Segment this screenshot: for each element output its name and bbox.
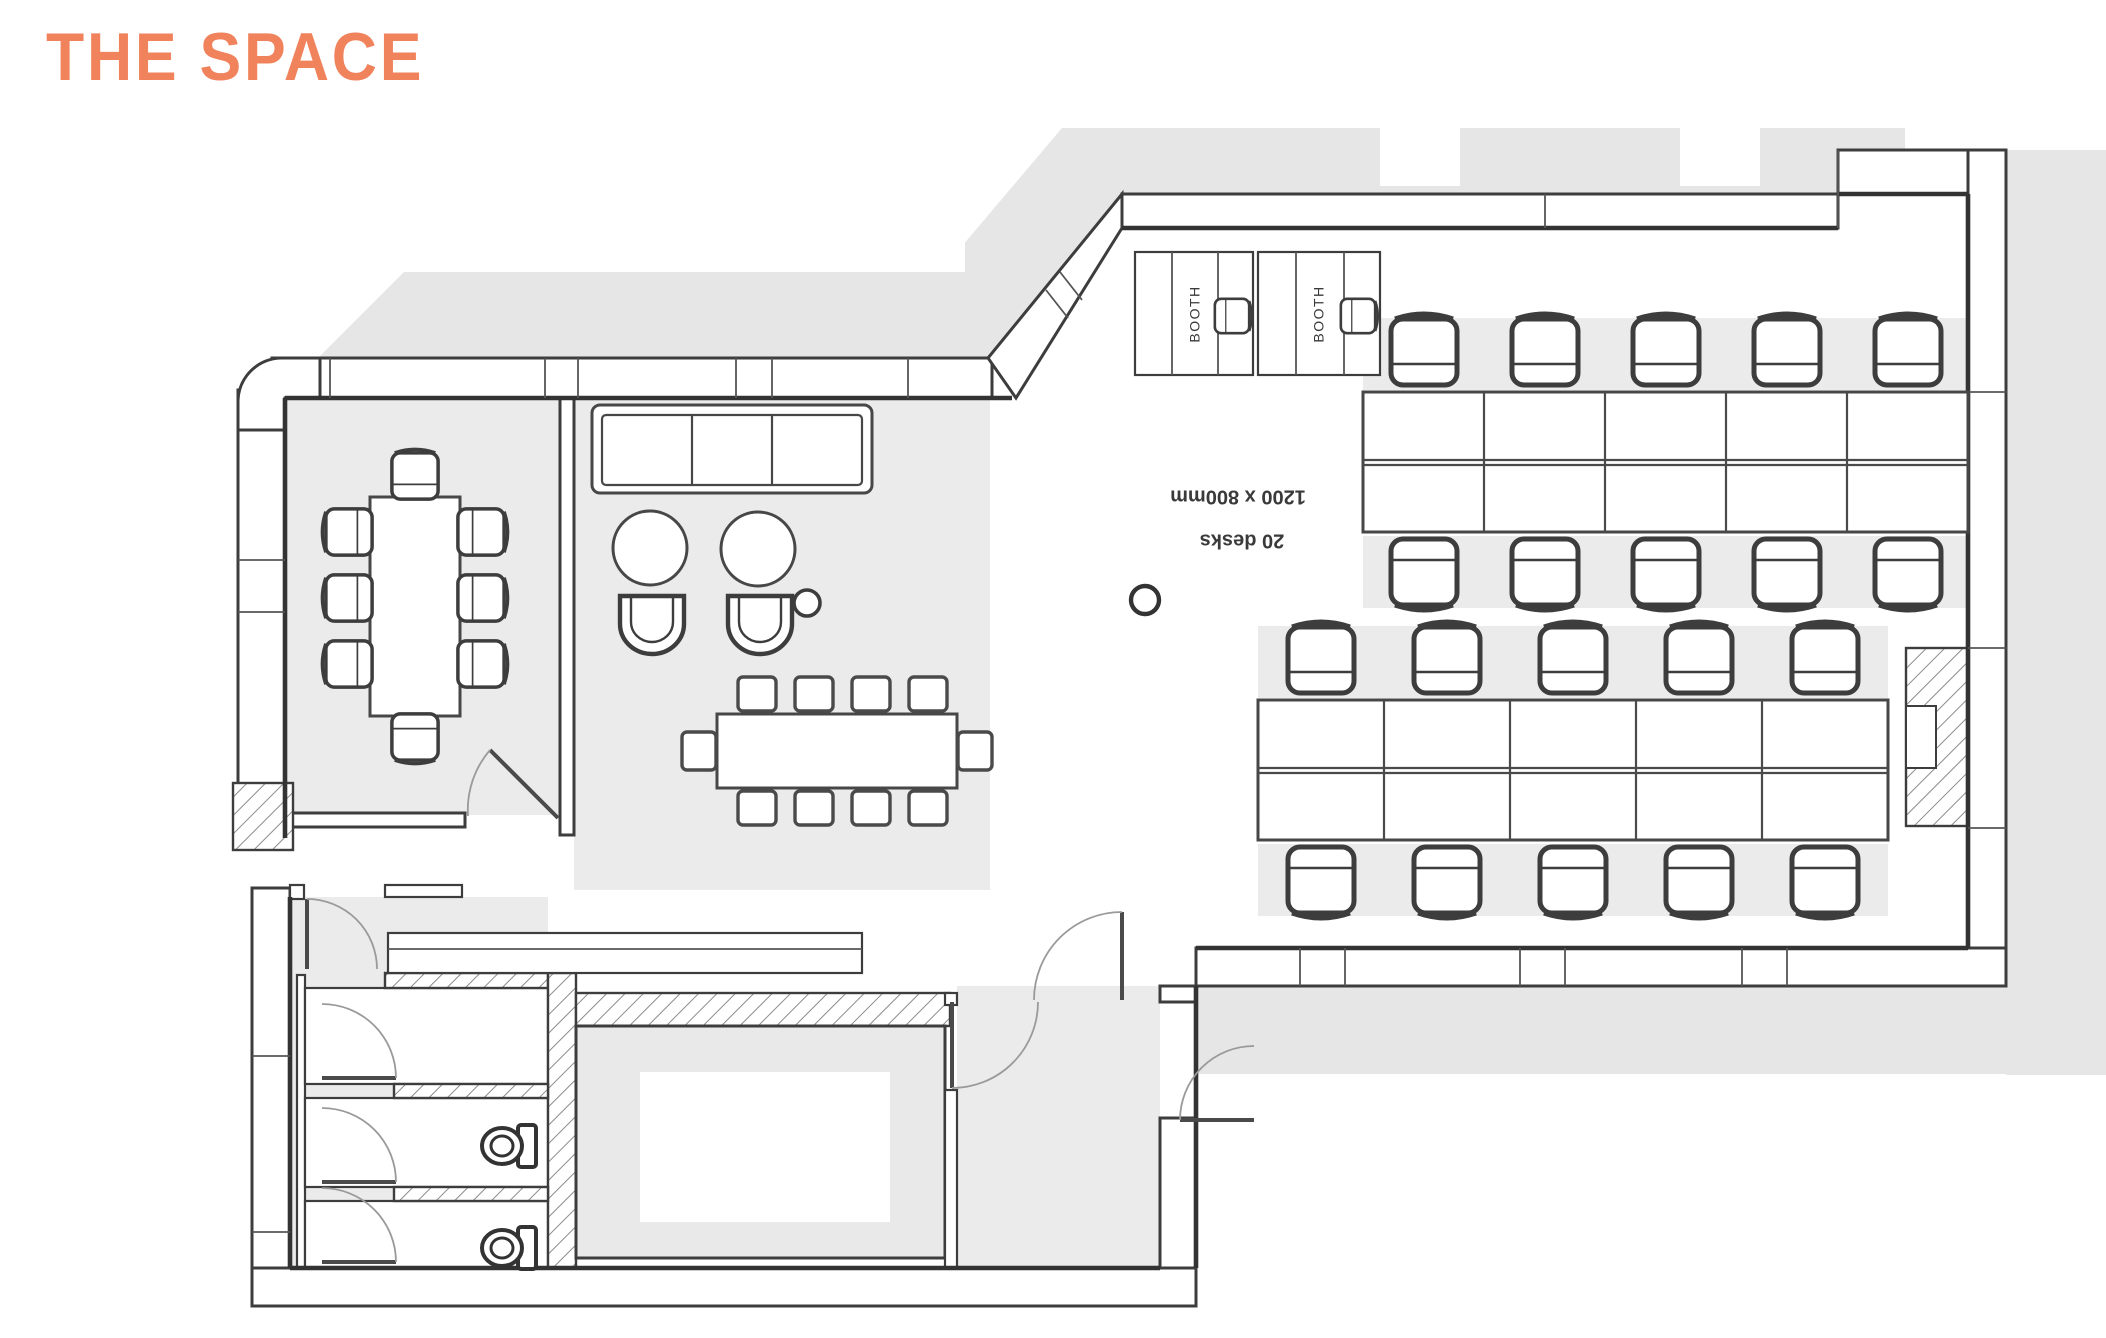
stool-icon bbox=[958, 732, 992, 770]
phone-booths: BOOTH BOOTH bbox=[1135, 252, 1380, 375]
office-chair-icon bbox=[1633, 539, 1699, 610]
booth: BOOTH bbox=[1135, 252, 1253, 375]
stool-icon bbox=[795, 791, 833, 825]
desk-size-annotation: 1200 x 800mm bbox=[1170, 486, 1306, 508]
office-chair-icon bbox=[1540, 847, 1606, 918]
meeting-chair-icon bbox=[392, 449, 438, 499]
booth-chair-icon bbox=[1215, 299, 1252, 333]
meeting-chair-icon bbox=[458, 641, 508, 687]
office-chair-icon bbox=[1288, 847, 1354, 918]
counter bbox=[388, 933, 862, 973]
office-chair-icon bbox=[1666, 847, 1732, 918]
office-chair-icon bbox=[1875, 314, 1941, 385]
round-table bbox=[721, 512, 795, 586]
office-chair-icon bbox=[1391, 539, 1457, 610]
stool-icon bbox=[682, 732, 716, 770]
office-chair-icon bbox=[1414, 847, 1480, 918]
meeting-table bbox=[370, 497, 460, 716]
office-chair-icon bbox=[1754, 314, 1820, 385]
stool-icon bbox=[909, 791, 947, 825]
office-chair-icon bbox=[1666, 622, 1732, 693]
booth-label: BOOTH bbox=[1187, 285, 1203, 342]
structural-column bbox=[1131, 586, 1159, 614]
meeting-chair-icon bbox=[322, 509, 372, 555]
office-chair-icon bbox=[1414, 622, 1480, 693]
meeting-chair-icon bbox=[322, 575, 372, 621]
tub-chair-icon bbox=[620, 596, 684, 654]
stool-icon bbox=[909, 677, 947, 711]
tub-chair-icon bbox=[728, 596, 792, 654]
stool-icon bbox=[738, 791, 776, 825]
stool-icon bbox=[738, 677, 776, 711]
office-chair-icon bbox=[1633, 314, 1699, 385]
booth-chair-icon bbox=[1341, 299, 1378, 333]
office-chair-icon bbox=[1391, 314, 1457, 385]
desk-count-annotation: 20 desks bbox=[1200, 530, 1285, 552]
desk-bank-upper bbox=[1363, 314, 1968, 610]
office-chair-icon bbox=[1288, 622, 1354, 693]
booth-label: BOOTH bbox=[1311, 285, 1327, 342]
round-table bbox=[613, 511, 687, 585]
side-table bbox=[794, 590, 820, 616]
office-chair-icon bbox=[1754, 539, 1820, 610]
booth: BOOTH bbox=[1258, 252, 1380, 375]
desk-bank-lower bbox=[1258, 622, 1888, 918]
office-chair-icon bbox=[1875, 539, 1941, 610]
sofa bbox=[592, 405, 872, 493]
toilet-icon bbox=[482, 1125, 536, 1167]
annotations: 1200 x 800mm 20 desks bbox=[1131, 486, 1306, 614]
meeting-chair-icon bbox=[458, 575, 508, 621]
stool-icon bbox=[795, 677, 833, 711]
office-chair-icon bbox=[1792, 622, 1858, 693]
office-chair-icon bbox=[1512, 539, 1578, 610]
office-chair-icon bbox=[1540, 622, 1606, 693]
office-chair-icon bbox=[1792, 847, 1858, 918]
meeting-chair-icon bbox=[322, 641, 372, 687]
floor-plan-drawing: BOOTH BOOTH bbox=[0, 0, 2106, 1338]
toilet-icon bbox=[482, 1227, 536, 1269]
office-chair-icon bbox=[1512, 314, 1578, 385]
floor-plan-page: THE SPACE bbox=[0, 0, 2106, 1338]
stool-icon bbox=[852, 791, 890, 825]
meeting-chair-icon bbox=[458, 509, 508, 555]
stool-icon bbox=[852, 677, 890, 711]
meeting-chair-icon bbox=[392, 714, 438, 764]
